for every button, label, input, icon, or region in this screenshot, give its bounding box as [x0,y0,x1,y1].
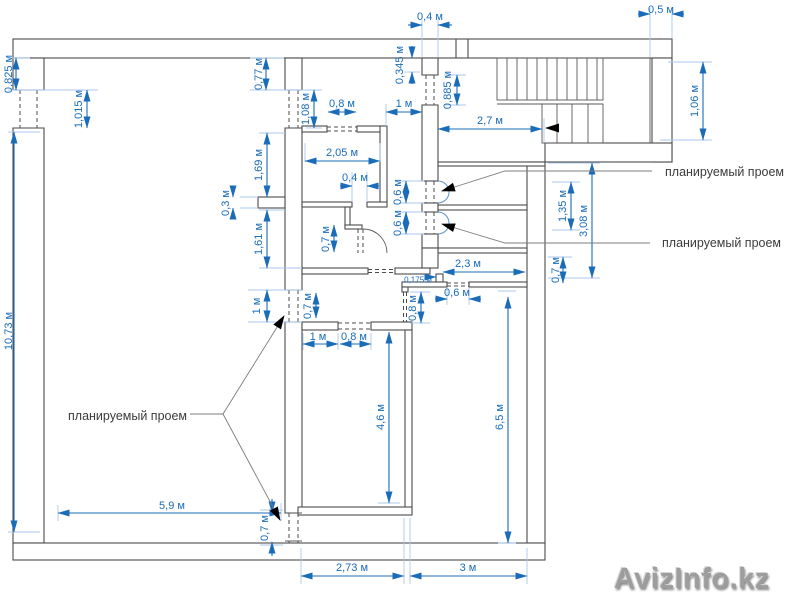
dim-left-room-height: 10,73 м [3,312,15,350]
dim-right-rooms-lower: 0,7 м [550,257,562,283]
dim-w1-opening-top: 1,08 м [300,93,312,125]
dim-left-wall-opening: 1,015 м [73,90,85,128]
bath-door-arc [363,229,387,253]
floor-plan-canvas: 0,4 м 0,5 м 0,8 м 1 м 2,7 м 2,05 м 0,4 м… [0,0,800,598]
outer-walls [13,39,672,560]
dim-lower-room-top-left: 1 м [310,331,327,343]
dim-corridor-south-opening: 0,8 м [407,295,419,321]
dim-top-wall: 0,4 м [417,11,443,23]
dim-corridor-bottom-opening: 0,6 м [444,287,470,299]
dim-stair-wall-opening: 0,885 м [442,71,454,109]
dim-left-room-width: 5,9 м [159,500,185,512]
dim-middle-room-top-opening: 0,8 м [329,98,355,110]
dim-w1-segment-lower: 1,61 м [253,223,265,255]
dim-stair-landing-width: 1,06 м [689,85,701,117]
dim-planned-opening-upper: 0,6 м [392,179,404,205]
staircase [497,58,650,143]
planned-opening-arc-2 [438,212,449,234]
planned-opening-arc-1 [438,181,449,203]
dim-w1-top-offset: 0,77 м [253,58,265,90]
planned-opening-leader-3b [223,414,280,520]
dim-w1-opening-mid-left: 1 м [251,298,263,315]
planned-opening-leader-1 [442,171,652,191]
dim-w1-stub: 0,3 м [220,190,232,216]
dimension-lines [14,14,703,576]
dim-planned-opening-lower: 0,6 м [392,210,404,236]
dim-bottom-opening-height: 0,7 м [259,515,271,541]
dim-right-rooms-total: 3,08 м [578,205,590,237]
dim-right-rooms-upper: 1,35 м [557,190,569,222]
planned-opening-leader-3a [223,316,284,414]
dim-stair-wall-top-offset: 0,345 м [394,46,406,84]
extension-lines [8,8,712,584]
dim-bath-door-width: 0,4 м [342,172,368,184]
dim-w1-segment-upper: 1,69 м [253,149,265,181]
dim-stair-hall-width: 2,7 м [477,115,503,127]
watermark: AvizInfo.kz [614,563,770,596]
dim-middle-room-width: 2,05 м [326,147,358,159]
dim-corridor-length: 2,3 м [455,258,481,270]
planned-opening-label-3: планируемый проем [68,409,187,423]
dim-w1-opening-mid: 0,7 м [302,293,314,319]
dimension-labels: 0,4 м 0,5 м 0,8 м 1 м 2,7 м 2,05 м 0,4 м… [3,4,701,574]
dim-lower-room-height: 4,6 м [375,404,387,430]
planned-opening-label-2: планируемый проем [662,236,781,250]
dim-bottom-span-right: 3 м [460,562,477,574]
planned-opening-leader-2 [442,224,650,243]
dim-bath-door-height: 0,7 м [320,226,332,252]
dim-bottom-span-left: 2,73 м [336,562,368,574]
dim-corridor-step: 0,175 м [404,276,432,285]
dim-hall-opening: 1 м [396,98,413,110]
dim-right-room-height: 6,5 м [494,404,506,430]
wall-openings [13,75,469,543]
dim-left-wall-top-offset: 0,825 м [3,55,15,93]
planned-opening-label-1: планируемый проем [665,165,784,179]
dim-top-right-wall: 0,5 м [648,4,674,16]
dim-lower-room-top-opening: 0,8 м [341,331,367,343]
floor-plan-page: 0,4 м 0,5 м 0,8 м 1 м 2,7 м 2,05 м 0,4 м… [0,0,800,598]
